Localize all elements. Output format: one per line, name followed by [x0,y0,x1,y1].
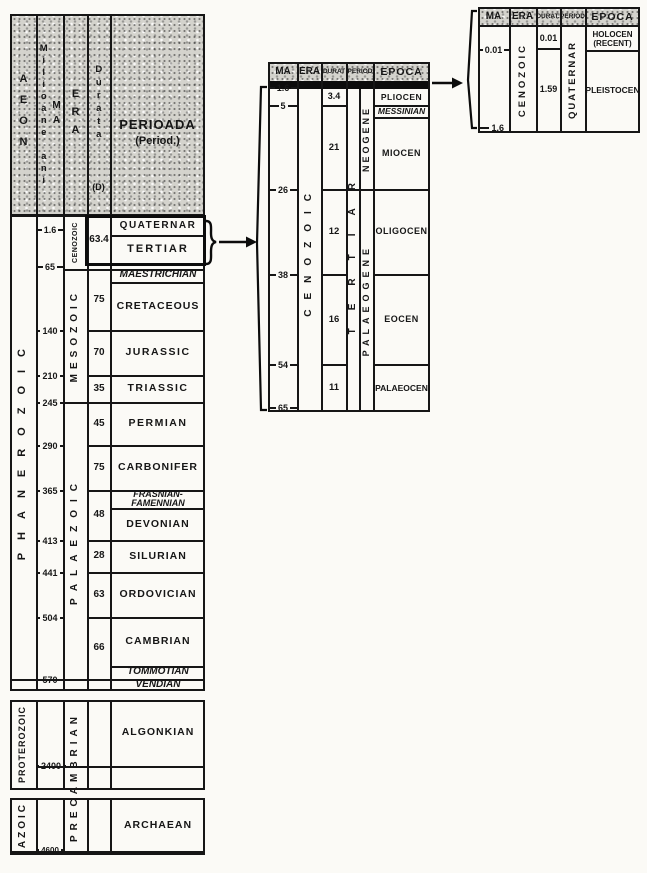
cz-subperiod-palaeogene: PALAEOGENE [359,190,374,411]
period-frasnian-famennian: FRASNIAN-FAMENNIAN [112,490,204,508]
period-permian: PERMIAN [112,403,204,445]
arrow-head-2 [452,78,463,89]
era-column-label: ERA [70,88,81,142]
line [87,700,89,790]
tick-570: 570 [36,674,64,686]
duration-cambrian: 66 [88,618,110,679]
cz-tick-38: 38 [268,269,298,281]
q-header-ma: MA [478,9,509,26]
tick-140: 140 [36,325,64,337]
milioane-ani-label: Milioane ani [39,43,49,187]
period-ordovician: ORDOVICIAN [112,573,204,617]
main-header-durata-d: (D) [87,178,110,198]
cz-duration-eocen: 16 [322,275,346,364]
cz-subperiod-neogene: NEOGENE [359,89,374,189]
cz-epoch-messinian: MESSINIAN [374,106,429,117]
cz-epoch-eocen: EOCEN [374,275,429,364]
tick-2400: 2400 [36,760,64,772]
q-epoch-holocen: HOLOCEN (RECENT) [586,29,639,50]
era-mesozoic: MESOZOIC [64,270,87,402]
tick-290: 290 [36,440,64,452]
period-carbonifer: CARBONIFER [112,446,204,490]
cz-header-epoca: EPOCA [373,64,430,81]
period-tommotian: TOMMOTIAN [112,666,204,679]
tick-413: 413 [36,535,64,547]
era-precambrian: PRECAMBRIAN [64,702,87,852]
cz-tick-65: 65 [268,402,298,414]
main-header-era: ERA [63,16,87,214]
line [87,798,89,853]
aeon-column-label: AEON [18,73,29,157]
bracket-cenozoic-table [257,87,267,410]
cz-epoch-miocen: MIOCEN [374,118,429,189]
cz-header-durat: DURAT [321,64,347,81]
duration-tertiar: 63.4 [89,216,109,265]
cz-era-cenozoic: CENOZOIC [297,89,322,411]
q-era-cenozoic: CENOZOIC [509,29,536,131]
cz-epoch-oligocen: OLIGOCEN [374,190,429,274]
durata-column-label: Durata [94,64,104,142]
period-maestrichian: MAESTRICHIAN [112,269,204,282]
ma-label: MA [51,100,61,130]
q-header-period: PERIOD [560,9,585,26]
cz-epoch-pliocen: PLIOCEN [374,89,429,105]
aeon-proterozoic: PROTEROZOIC [10,700,36,790]
main-header-perioada-sub: (Period.) [110,134,205,150]
cz-tick-54: 54 [268,359,298,371]
cz-period-tertiar: TERTIAR [346,89,360,411]
tick-365: 365 [36,485,64,497]
arrow-head-1 [246,237,257,248]
period-quaternar: QUATERNAR [112,217,204,235]
period-vendian: VENDIAN [112,680,204,691]
cz-epoch-palaeocen: PALAEOCEN [374,365,429,411]
cz-duration-palaeocen: 11 [322,365,346,411]
q-duration-holocen: 0.01 [537,29,560,48]
period-cambrian: CAMBRIAN [112,618,204,666]
cz-header-ma: MA [268,64,298,81]
geological-time-scale-figure: { "main_table": { "header": { "aeon": "A… [0,0,647,873]
duration-silurian: 28 [88,541,110,572]
q-duration-pleistocen: 1.59 [537,49,560,131]
duration-jurassic: 70 [88,331,110,375]
period-archaean: ARCHAEAN [112,800,204,852]
q-tick-1-6: 1.6 [480,122,506,134]
period-triassic: TRIASSIC [112,376,204,402]
tick-210: 210 [36,370,64,382]
tick-4600: 4600 [36,844,64,856]
tick-65: 65 [36,261,64,273]
duration-carbonifer: 75 [88,446,110,490]
duration-ordovician: 63 [88,573,110,617]
tick-245: 245 [36,397,64,409]
period-tertiar: TERTIAR [112,236,204,264]
cz-tick-5: 5 [268,100,298,112]
cz-duration-miocen: 21 [322,106,346,189]
q-tick-0-01: 0.01 [478,44,509,56]
q-header-durat: DURAT. [536,9,560,26]
tick-441: 441 [36,567,64,579]
cz-duration-pliocen: 3.4 [322,89,346,105]
duration-cretaceous: 75 [88,270,110,330]
cz-header-era: ERA [297,64,322,81]
cz-tick-26: 26 [268,184,298,196]
duration-devonian: 48 [88,491,110,540]
period-cretaceous: CRETACEOUS [112,283,204,330]
aeon-phanerozoic: PHANEROZOIC [10,216,36,680]
q-period-quaternar: QUATERNAR [560,29,585,131]
period-algonkian: ALGONKIAN [112,700,204,765]
aeon-azoic: AZOIC [10,798,36,853]
line [36,700,38,790]
main-header-aeon: AEON [10,16,36,214]
tick-504: 504 [36,612,64,624]
cz-tick-1-6: 1.6 [268,82,298,94]
period-jurassic: JURASSIC [112,331,204,375]
main-header-durata: Durata [87,20,110,185]
q-header-epoca: EPOCA [585,9,640,26]
duration-triassic: 35 [88,376,110,402]
brace-main-to-cenozoic [206,221,216,264]
era-palaezoic: PALAEZOIC [64,403,87,679]
tick-1-6: 1.6 [36,224,64,236]
q-header-era: ERA [509,9,536,26]
q-epoch-pleistocen: PLEISTOCEN [586,50,639,131]
duration-permian: 45 [88,403,110,445]
era-cenozoic: CENOZOIC [64,216,87,269]
cz-header-period: PERIOD [346,64,374,81]
period-silurian: SILURIAN [112,541,204,572]
main-header-ma: MA [49,16,63,214]
period-devonian: DEVONIAN [112,509,204,540]
bracket-quaternary-table [468,11,477,128]
cz-duration-oligocen: 12 [322,190,346,274]
main-header-perioada: PERIOADA [110,116,205,134]
